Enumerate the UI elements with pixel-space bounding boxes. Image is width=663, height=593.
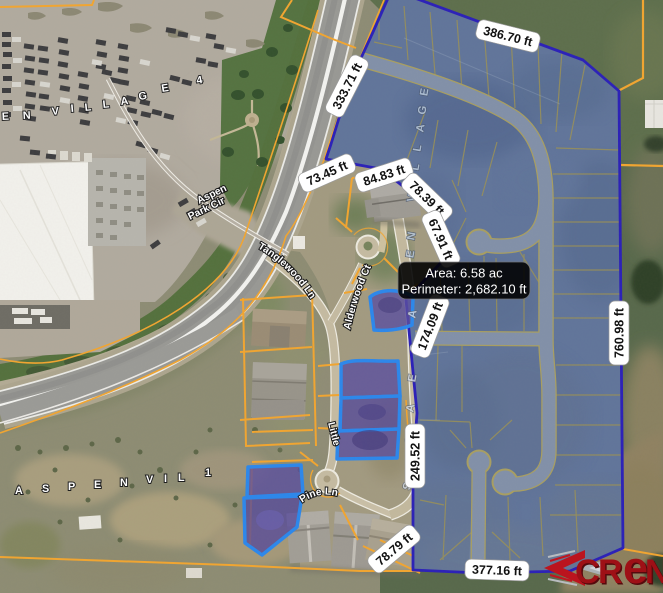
svg-text:N: N	[23, 110, 32, 122]
svg-text:V: V	[146, 474, 154, 486]
svg-text:A: A	[15, 485, 23, 497]
svg-text:Area: 6.58 ac: Area: 6.58 ac	[425, 266, 503, 281]
svg-text:249.52 ft: 249.52 ft	[409, 430, 423, 481]
svg-text:G: G	[138, 90, 148, 103]
svg-text:E: E	[94, 479, 101, 491]
svg-text:I: I	[164, 473, 167, 485]
svg-text:E: E	[2, 111, 10, 123]
svg-text:S: S	[42, 483, 49, 495]
svg-text:760.98 ft: 760.98 ft	[613, 307, 627, 358]
svg-text:N: N	[645, 553, 663, 591]
svg-text:CR: CR	[575, 553, 622, 591]
svg-text:P: P	[68, 481, 75, 493]
svg-text:e: e	[623, 542, 647, 593]
svg-text:N: N	[120, 477, 128, 489]
svg-text:Perimeter: 2,682.10 ft: Perimeter: 2,682.10 ft	[401, 282, 526, 297]
svg-text:377.16 ft: 377.16 ft	[472, 563, 523, 579]
svg-text:L: L	[178, 472, 185, 484]
svg-text:1: 1	[205, 467, 211, 479]
